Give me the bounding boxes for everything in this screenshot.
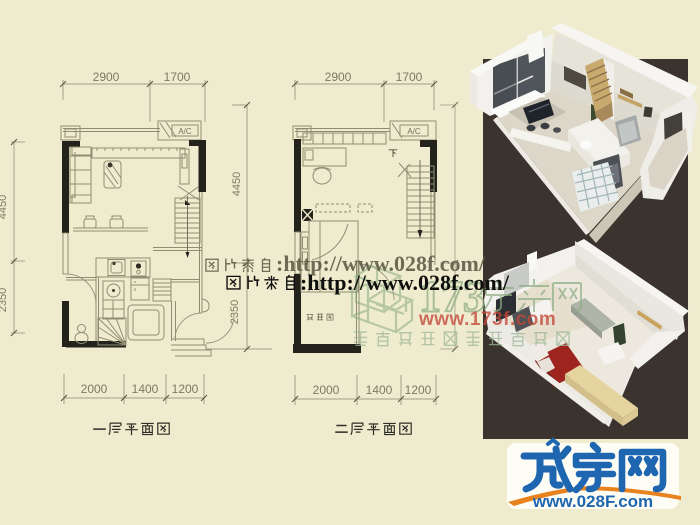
svg-text:1700: 1700 [164, 70, 191, 84]
svg-text:2900: 2900 [325, 70, 352, 84]
svg-text:2350: 2350 [229, 300, 241, 324]
svg-text:A/C: A/C [407, 127, 421, 136]
svg-text:2350: 2350 [0, 288, 9, 312]
svg-text::http://www.028f.com/: :http://www.028f.com/ [300, 270, 510, 295]
svg-text:A/C: A/C [178, 127, 192, 136]
svg-text:2000: 2000 [81, 382, 108, 396]
svg-text:1200: 1200 [172, 382, 199, 396]
svg-text:www.028F.com: www.028F.com [532, 492, 653, 511]
svg-text:2000: 2000 [313, 383, 340, 397]
svg-text:4450: 4450 [0, 195, 9, 219]
svg-text:1400: 1400 [132, 382, 159, 396]
svg-text:2900: 2900 [93, 70, 120, 84]
svg-text:1200: 1200 [405, 383, 432, 397]
svg-text:1400: 1400 [366, 383, 393, 397]
svg-text:4450: 4450 [231, 172, 243, 196]
svg-text:www.173f.com: www.173f.com [418, 309, 556, 330]
svg-text:1700: 1700 [396, 70, 423, 84]
